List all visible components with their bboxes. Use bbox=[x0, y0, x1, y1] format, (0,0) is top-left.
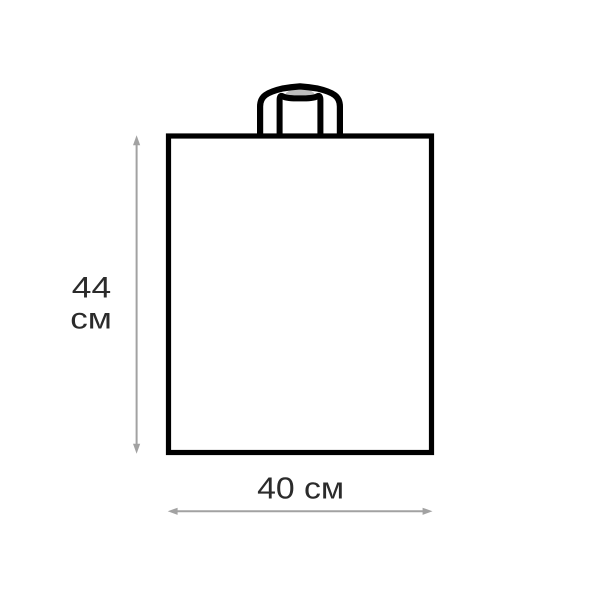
svg-text:см: см bbox=[70, 301, 112, 335]
svg-text:44: 44 bbox=[72, 270, 111, 304]
svg-text:40 см: 40 см bbox=[257, 471, 344, 505]
